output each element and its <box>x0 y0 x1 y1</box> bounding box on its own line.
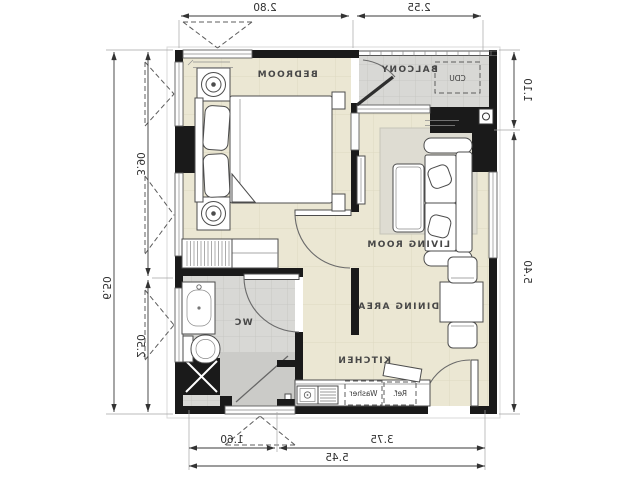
cdu-label: CDU <box>449 74 466 83</box>
living-side-window <box>489 172 497 258</box>
vanity-sink <box>182 282 215 334</box>
drain-box <box>479 109 493 124</box>
side-window-1 <box>175 62 183 126</box>
dim-top-bedroom: 2.80 <box>253 2 276 14</box>
tv-console <box>357 156 365 204</box>
dim-left-bedroom: 3.90 <box>134 152 146 175</box>
floor-plan-image: 2.80 2.55 1.10 5.40 3.90 2.50 6.50 1.60 … <box>0 0 640 480</box>
dining-chair <box>448 257 477 283</box>
washer-label: Washer <box>349 389 378 398</box>
pillow <box>202 105 230 151</box>
headboard <box>195 98 203 202</box>
balcony-living-window <box>357 105 430 113</box>
wc-fixtures <box>182 282 220 363</box>
bedroom-living-partition <box>351 113 359 150</box>
toilet <box>183 335 220 363</box>
living-room-label: LIVING ROOM <box>366 240 450 250</box>
dim-right-main: 5.40 <box>521 260 533 283</box>
service-shaft <box>183 358 220 395</box>
wc-label: WC <box>233 318 252 328</box>
kitchen-label: KITCHEN <box>337 356 391 366</box>
fridge-label: Ref. <box>393 389 407 398</box>
dim-left-wc: 2.50 <box>134 334 146 357</box>
pillow <box>203 153 230 197</box>
balcony-railing <box>359 51 497 56</box>
dim-bottom-entry: 1.60 <box>220 434 243 446</box>
dining-chair <box>448 322 477 348</box>
dining-area-label: DINING AREA <box>357 302 439 312</box>
balcony-label: BALCONY <box>380 65 438 75</box>
dining-table <box>440 282 483 322</box>
mirrored-plan-wrapper: 2.80 2.55 1.10 5.40 3.90 2.50 6.50 1.60 … <box>0 0 640 480</box>
service-hatch <box>225 406 295 414</box>
bedroom-top-window <box>183 50 252 58</box>
dim-bottom-kitchen: 3.75 <box>370 434 393 446</box>
dim-top-balcony: 2.55 <box>407 2 430 14</box>
dim-bottom-total: 5.45 <box>325 452 348 464</box>
wardrobe <box>182 239 278 268</box>
lamp-icon <box>202 202 226 226</box>
dim-left-total: 6.50 <box>100 276 112 299</box>
coffee-table <box>393 164 424 232</box>
lamp-icon <box>202 73 226 97</box>
dim-right-balcony: 1.10 <box>521 78 533 101</box>
kitchen-sink <box>297 386 338 404</box>
floor-plan-svg: 2.80 2.55 1.10 5.40 3.90 2.50 6.50 1.60 … <box>0 0 640 480</box>
bedroom-label: BEDROOM <box>256 70 317 80</box>
